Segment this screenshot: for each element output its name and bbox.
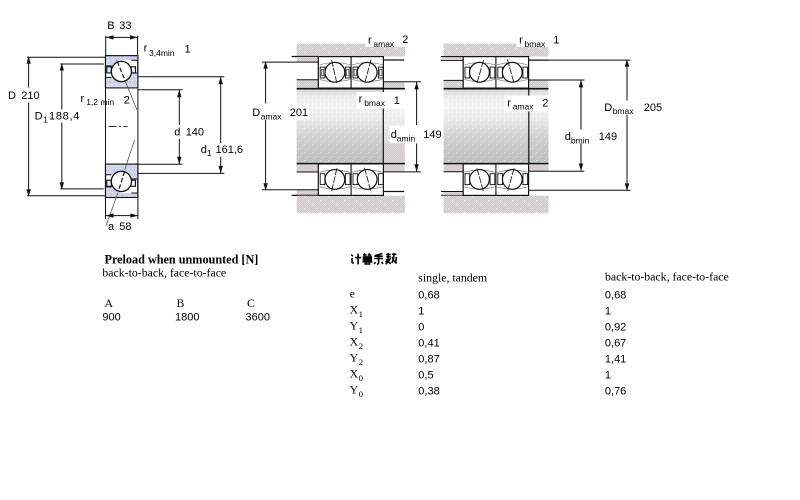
svg-text:0,92: 0,92 — [605, 322, 626, 334]
svg-text:2: 2 — [402, 34, 408, 46]
svg-text:33: 33 — [119, 20, 131, 32]
svg-text:B: B — [107, 20, 114, 32]
svg-text:0: 0 — [359, 389, 364, 399]
svg-text:205: 205 — [644, 102, 662, 114]
svg-text:r: r — [144, 43, 148, 55]
svg-text:r: r — [368, 35, 372, 47]
svg-text:2: 2 — [542, 98, 548, 110]
svg-text:bmax: bmax — [364, 98, 386, 108]
svg-text:3,4min: 3,4min — [149, 48, 175, 58]
svg-text:bmax: bmax — [613, 106, 635, 116]
svg-text:D: D — [8, 90, 16, 102]
svg-text:bmin: bmin — [571, 135, 590, 145]
svg-text:e: e — [350, 287, 355, 301]
svg-text:210: 210 — [21, 90, 39, 102]
svg-text:0,41: 0,41 — [418, 338, 439, 350]
svg-text:d: d — [174, 127, 180, 139]
svg-text:amax: amax — [261, 111, 283, 121]
svg-text:B: B — [177, 296, 185, 310]
svg-text:X: X — [350, 335, 359, 349]
svg-text:0,68: 0,68 — [418, 290, 439, 302]
svg-text:r: r — [359, 94, 363, 106]
svg-text:amax: amax — [373, 39, 395, 49]
svg-text:0,68: 0,68 — [605, 290, 626, 302]
svg-text:0,67: 0,67 — [605, 338, 626, 350]
svg-text:1: 1 — [553, 35, 559, 47]
svg-text:1800: 1800 — [175, 312, 199, 324]
svg-text:1: 1 — [605, 370, 611, 382]
svg-text:C: C — [247, 296, 255, 310]
svg-text:3600: 3600 — [246, 312, 270, 324]
svg-text:r: r — [519, 35, 523, 47]
svg-text:D: D — [252, 107, 260, 119]
svg-text:bmax: bmax — [525, 39, 547, 49]
svg-text:Y: Y — [350, 319, 359, 333]
svg-text:201: 201 — [290, 107, 308, 119]
svg-text:back-to-back, face-to-face: back-to-back, face-to-face — [605, 270, 729, 284]
svg-text:149: 149 — [423, 129, 441, 141]
svg-text:Preload when unmounted [N]: Preload when unmounted [N] — [105, 253, 259, 267]
svg-text:0,76: 0,76 — [605, 386, 626, 398]
svg-text:0: 0 — [359, 373, 364, 383]
svg-text:a: a — [108, 221, 115, 233]
svg-text:Y: Y — [350, 383, 359, 397]
svg-text:0: 0 — [418, 322, 424, 334]
svg-text:161,6: 161,6 — [216, 144, 244, 156]
svg-text:1: 1 — [207, 148, 212, 158]
svg-text:188,4: 188,4 — [49, 111, 80, 123]
svg-text:0,87: 0,87 — [418, 354, 439, 366]
svg-text:r: r — [81, 93, 85, 105]
svg-text:X: X — [350, 303, 359, 317]
svg-text:1,41: 1,41 — [605, 354, 626, 366]
svg-text:2: 2 — [359, 357, 363, 367]
svg-text:amax: amax — [513, 101, 535, 111]
svg-text:58: 58 — [119, 221, 131, 233]
svg-text:1: 1 — [359, 309, 363, 319]
svg-text:1: 1 — [394, 95, 400, 107]
svg-text:1: 1 — [185, 44, 191, 56]
svg-text:1: 1 — [359, 325, 363, 335]
svg-text:X: X — [350, 367, 359, 381]
svg-text:single, tandem: single, tandem — [418, 271, 487, 285]
svg-text:900: 900 — [102, 312, 120, 324]
svg-text:2: 2 — [359, 341, 363, 351]
svg-text:1: 1 — [605, 306, 611, 318]
svg-text:0,5: 0,5 — [418, 370, 433, 382]
svg-text:1: 1 — [418, 306, 424, 318]
svg-text:0,38: 0,38 — [418, 386, 439, 398]
svg-text:A: A — [105, 296, 114, 310]
svg-text:r: r — [507, 98, 511, 110]
svg-text:amin: amin — [397, 133, 416, 143]
svg-text:149: 149 — [599, 131, 617, 143]
svg-text:1: 1 — [43, 115, 48, 125]
svg-text:D: D — [35, 111, 43, 123]
svg-text:140: 140 — [186, 127, 204, 139]
svg-text:D: D — [604, 102, 612, 114]
svg-text:back-to-back, face-to-face: back-to-back, face-to-face — [102, 266, 226, 280]
svg-text:Y: Y — [350, 351, 359, 365]
svg-text:1,2 min: 1,2 min — [86, 97, 114, 107]
svg-text:2: 2 — [124, 95, 130, 107]
